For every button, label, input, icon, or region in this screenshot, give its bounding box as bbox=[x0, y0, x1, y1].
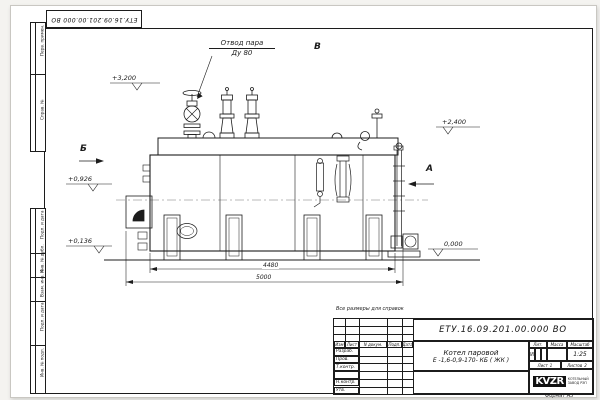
sheet-cell: Лист 1 bbox=[529, 361, 561, 369]
row-empty bbox=[334, 371, 359, 379]
row-tkontr: Т.контр. bbox=[334, 363, 359, 371]
elevation-0926: +0,926 bbox=[68, 175, 92, 183]
col-izm: Изм bbox=[334, 341, 345, 348]
product-model: Е -1,6-0,9-170- КБ ( ЖК ) bbox=[433, 357, 509, 364]
col-data: Дата bbox=[402, 341, 413, 348]
sheets-value: 2 bbox=[584, 363, 587, 368]
steam-outlet-callout: Отвод пара Ду 80 bbox=[209, 39, 275, 57]
safety-valves bbox=[220, 88, 259, 139]
doc-number-cell: ЕТУ.16.09.201.00.000 ВО bbox=[413, 319, 593, 341]
callout-line1: Отвод пара bbox=[209, 39, 275, 49]
screenshot: ЕТУ.16.09.201.00.000 ВО Перв. примен. Сп… bbox=[0, 0, 600, 400]
doc-number: ЕТУ.16.09.201.00.000 ВО bbox=[439, 325, 567, 335]
callout-line2: Ду 80 bbox=[209, 49, 275, 57]
scale-header: Масштаб bbox=[567, 341, 593, 348]
burner bbox=[126, 165, 152, 250]
sheet-label: Лист bbox=[538, 363, 548, 368]
dimension-5000: 5000 bbox=[255, 274, 272, 281]
support-legs bbox=[164, 215, 382, 260]
mass-value bbox=[547, 348, 567, 361]
sheet-value: 1 bbox=[550, 363, 553, 368]
feed-pump bbox=[388, 234, 420, 257]
lit-header: Лит. bbox=[529, 341, 547, 348]
scale-value: 1:25 bbox=[567, 348, 593, 361]
elevation-marks bbox=[66, 83, 480, 256]
dome bbox=[203, 132, 215, 138]
sheets-label: Листов bbox=[567, 363, 582, 368]
view-arrows bbox=[79, 158, 434, 187]
view-marker-v: В bbox=[314, 42, 321, 52]
product-name-cell: Котел паровой Е -1,6-0,9-170- КБ ( ЖК ) bbox=[413, 341, 529, 371]
elevation-0136: +0,136 bbox=[68, 237, 92, 245]
row-razrab: Разраб. bbox=[334, 348, 359, 356]
view-marker-a: А bbox=[426, 164, 433, 174]
row-utv: Утв. bbox=[334, 387, 359, 395]
col-list: Лист bbox=[345, 341, 359, 348]
mass-header: Масса bbox=[547, 341, 567, 348]
format-note: Формат А3 bbox=[545, 393, 573, 399]
reference-note: Все размеры для справок bbox=[336, 306, 404, 312]
revision-grid bbox=[334, 319, 413, 341]
row-prov: Пров. bbox=[334, 356, 359, 364]
product-name: Котел паровой bbox=[444, 349, 499, 357]
row-nkontr: Н.контр. bbox=[334, 379, 359, 387]
dimension-4480: 4480 bbox=[262, 262, 279, 269]
elevation-0000: 0,000 bbox=[444, 240, 463, 248]
end-fitting bbox=[358, 109, 402, 150]
kvzr-logo: KVZR bbox=[533, 376, 565, 387]
logo-cell: KVZR КОТЕЛЬНЫЙ ЗАВОД РЭП bbox=[529, 369, 593, 394]
logo-caption: КОТЕЛЬНЫЙ ЗАВОД РЭП bbox=[568, 378, 589, 385]
callout-leader bbox=[197, 56, 212, 99]
view-marker-b: Б bbox=[80, 144, 87, 154]
elevation-2400: +2,400 bbox=[442, 118, 466, 126]
elevation-3200: +3,200 bbox=[112, 74, 136, 82]
boiler-body bbox=[150, 138, 398, 251]
water-level-gauges bbox=[314, 156, 351, 207]
sheets-cell: Листов 2 bbox=[561, 361, 593, 369]
col-podp: Подп. bbox=[387, 341, 402, 348]
title-block: ЕТУ.16.09.201.00.000 ВО Изм Лист N докум… bbox=[333, 318, 594, 395]
dome bbox=[332, 133, 342, 138]
empty-cell bbox=[413, 371, 529, 394]
col-ndocum: N докум. bbox=[359, 341, 387, 348]
